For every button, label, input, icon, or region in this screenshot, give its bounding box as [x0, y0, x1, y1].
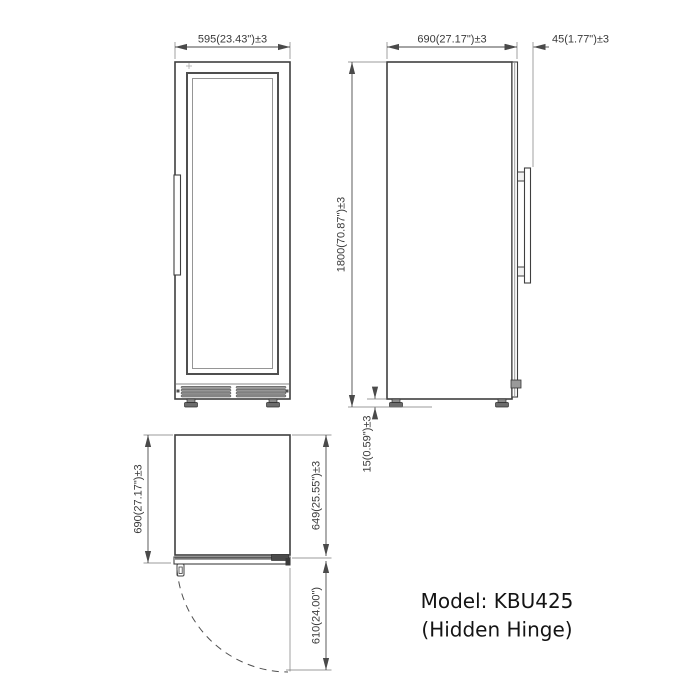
handle-bracket-bottom	[518, 267, 525, 276]
front-door-handle	[174, 175, 181, 275]
front-width-label: 595(23.43")±3	[198, 34, 267, 46]
handle-bar	[525, 168, 531, 283]
model-hinge-text: (Hidden Hinge)	[421, 618, 572, 642]
handle-bracket-top	[518, 172, 525, 181]
door-swing-arc	[177, 569, 288, 672]
side-body-outline	[387, 62, 512, 399]
dimension-drawing-page: 595(23.43")±3	[0, 0, 700, 700]
glass-pane	[193, 79, 273, 369]
door-thickness-dimension: 45(1.77")±3	[502, 34, 609, 168]
top-door-closed	[174, 555, 291, 577]
door-bottom-bracket	[511, 380, 521, 388]
top-body-outline	[175, 435, 290, 555]
side-depth-dimension: 690(27.17")±3	[387, 34, 517, 60]
hinge-end-cap	[286, 558, 291, 566]
door-thickness-label: 45(1.77")±3	[552, 34, 609, 46]
foot-height-label: 15(0.59")±3	[362, 415, 374, 472]
side-foot-rear	[496, 399, 509, 407]
front-width-dimension: 595(23.43")±3	[175, 34, 290, 60]
top-view: 690(27.17")±3 649(25.55")±3 610(24.00")	[133, 435, 332, 672]
side-depth-label: 690(27.17")±3	[417, 34, 486, 46]
top-body-depth-dimension: 649(25.55")±3	[292, 435, 332, 558]
front-foot-right	[267, 399, 280, 407]
front-foot-left	[185, 399, 198, 407]
foot-height-dimension: 15(0.59")±3	[362, 387, 387, 473]
door-swing-dimension: 610(24.00")	[286, 561, 332, 672]
dimension-drawing: 595(23.43")±3	[0, 0, 700, 700]
front-view: 595(23.43")±3	[174, 34, 290, 408]
side-foot-front	[390, 399, 403, 407]
top-body-depth-label: 649(25.55")±3	[311, 461, 323, 530]
height-label: 1800(70.87")±3	[336, 197, 348, 272]
vent-screw-right	[286, 390, 289, 393]
side-view: 690(27.17")±3 45(1.77")±3	[336, 34, 610, 473]
top-total-depth-dimension: 690(27.17")±3	[133, 435, 174, 563]
model-label: Model: KBU425 (Hidden Hinge)	[421, 589, 574, 642]
side-door-handle	[518, 168, 531, 283]
door-swing-label: 610(24.00")	[311, 587, 323, 644]
top-door-handle-inner	[179, 567, 182, 574]
model-name-text: Model: KBU425	[421, 589, 574, 613]
vent-screw-left	[177, 390, 180, 393]
top-total-depth-label: 690(27.17")±3	[133, 464, 145, 533]
